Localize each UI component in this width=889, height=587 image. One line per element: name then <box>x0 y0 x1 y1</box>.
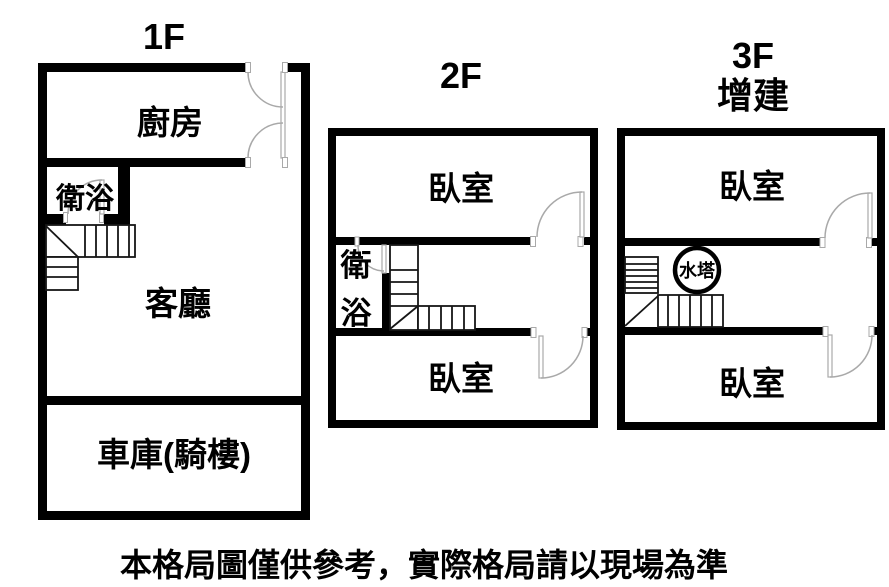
kitchen-inner-door-arc <box>248 123 283 158</box>
stair-run-vertical <box>46 257 78 290</box>
stair-run-horizontal <box>46 225 135 257</box>
floorplan-drawing: 1F 廚房 衛浴 客廳 車庫 <box>0 0 889 587</box>
water-tank-label: 水塔 <box>679 260 716 281</box>
bedroom-door-leaf <box>539 336 543 378</box>
bedroom-door-leaf <box>868 193 872 238</box>
door-jamb <box>246 158 251 168</box>
floor-2f: 2F 臥室 衛 浴 臥室 <box>328 55 598 428</box>
wall-2f-upper-stub <box>584 237 598 245</box>
bedroom-door-leaf <box>580 192 584 237</box>
disclaimer-text: 本格局圖僅供參考，實際格局請以現場為準 <box>120 547 728 583</box>
bedroom-door-leaf <box>828 335 832 377</box>
door-jamb <box>355 237 359 246</box>
wall-1f-garage <box>38 396 310 405</box>
door-jamb <box>820 238 825 248</box>
door-jamb <box>531 328 536 338</box>
floor-1f-title: 1F <box>143 16 185 57</box>
door-jamb <box>283 158 288 168</box>
wall-2f-bottom <box>328 420 598 428</box>
bedroom-door-arc <box>541 336 583 378</box>
wall-3f-lower <box>617 327 827 335</box>
bedroom-door-arc <box>537 192 582 237</box>
floor-2f-title: 2F <box>440 55 482 96</box>
wall-1f-right <box>301 63 310 520</box>
room-label-bedroom-top-2f: 臥室 <box>428 170 494 207</box>
floor-3f-subtitle: 增建 <box>717 75 789 116</box>
room-label-bedroom-bottom-3f: 臥室 <box>719 365 785 402</box>
wall-1f-bath-bottom-right <box>104 214 130 225</box>
room-label-bathroom-1f: 衛浴 <box>55 182 115 215</box>
floor-1f: 1F 廚房 衛浴 客廳 車庫 <box>38 16 310 520</box>
door-jamb <box>823 327 828 337</box>
bedroom-door-arc <box>825 193 870 238</box>
wall-1f-kitchen <box>38 158 248 167</box>
bedroom-door-arc <box>830 335 872 377</box>
room-label-bath-char-top: 衛 <box>340 248 372 283</box>
room-label-kitchen: 廚房 <box>137 104 203 141</box>
wall-1f-left <box>38 63 47 520</box>
wall-1f-bottom <box>38 511 310 520</box>
room-label-garage: 車庫(騎樓) <box>97 436 251 473</box>
stair-break-line <box>625 296 658 326</box>
bathroom-door-leaf <box>382 245 386 273</box>
door-jamb <box>246 63 251 73</box>
room-label-bedroom-bottom-2f: 臥室 <box>428 360 494 397</box>
wall-3f-bottom <box>617 422 885 430</box>
floorplan-canvas: 1F 廚房 衛浴 客廳 車庫 <box>0 0 889 587</box>
kitchen-top-door-arc <box>248 72 283 107</box>
wall-3f-upper-stub <box>872 238 885 246</box>
floor-3f-title: 3F <box>732 35 774 76</box>
stair-run-horizontal <box>418 306 475 330</box>
wall-3f-top <box>617 128 885 136</box>
wall-2f-left <box>328 128 336 428</box>
door-jamb <box>531 237 536 247</box>
wall-1f-top-left <box>38 63 248 72</box>
wall-3f-left <box>617 128 625 430</box>
wall-2f-right <box>590 128 598 428</box>
floor-3f: 3F 增建 水塔 臥室 臥室 <box>617 35 885 430</box>
door-jamb <box>283 63 288 73</box>
wall-2f-top <box>328 128 598 136</box>
room-label-living: 客廳 <box>145 285 211 322</box>
door-jamb <box>867 238 872 248</box>
wall-2f-bath-right <box>382 273 390 336</box>
wall-niche-line <box>281 72 285 158</box>
wall-3f-right <box>877 128 885 430</box>
room-label-bedroom-top-3f: 臥室 <box>719 168 785 205</box>
door-jamb <box>578 237 583 247</box>
wall-3f-upper <box>617 238 823 246</box>
room-label-bath-char-bottom: 浴 <box>341 296 373 331</box>
